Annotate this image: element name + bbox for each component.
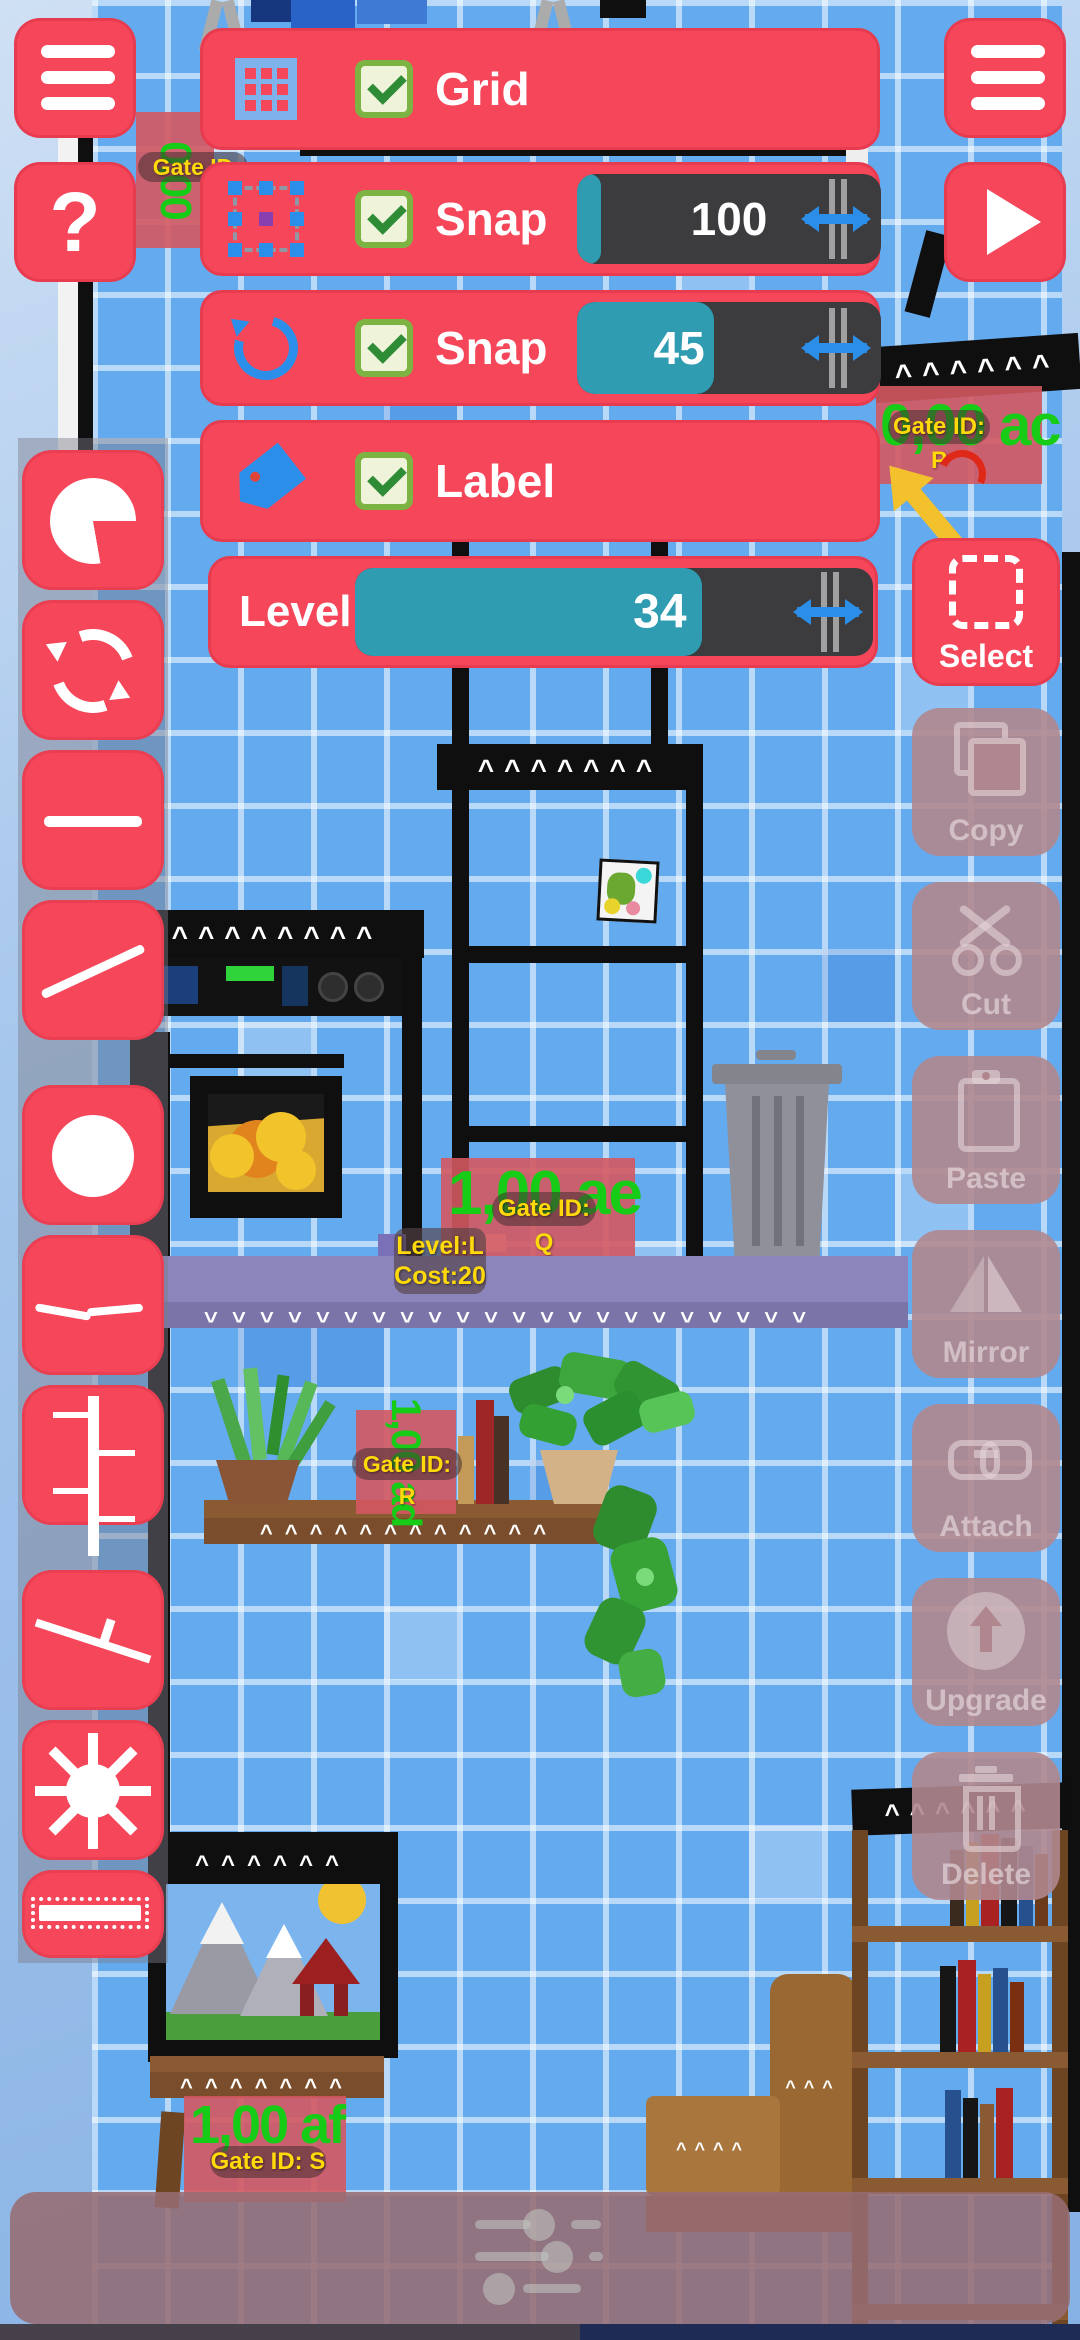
level-slider[interactable]: 34 bbox=[355, 568, 873, 656]
paste-tool-label: Paste bbox=[912, 1162, 1060, 1196]
label-label: Label bbox=[435, 454, 555, 508]
info-level: Level:L bbox=[394, 1231, 486, 1262]
ceiling-object[interactable] bbox=[357, 0, 427, 24]
grid-checkbox[interactable] bbox=[355, 60, 413, 118]
cycle-arrows-icon bbox=[25, 603, 161, 737]
level-editor-screen: ^^^^^^ 0,00 ac Gate ID: P ^^^^^^^ bbox=[0, 0, 1080, 2340]
snap-move-row: Snap 100 bbox=[200, 162, 880, 276]
snap-rotate-value: 45 bbox=[577, 321, 705, 375]
delete-tool-label: Delete bbox=[912, 1858, 1060, 1892]
snap-move-checkbox[interactable] bbox=[355, 190, 413, 248]
shallow-angle-icon bbox=[25, 1238, 161, 1372]
angle-tool-button[interactable] bbox=[22, 1235, 164, 1375]
bottom-edge-strip bbox=[0, 2324, 580, 2340]
sun-object bbox=[318, 1884, 366, 1924]
gate-r-id-label: Gate ID: R bbox=[352, 1448, 462, 1480]
stove-dial bbox=[354, 972, 384, 1002]
sliders-icon bbox=[475, 2212, 605, 2304]
snap-rotate-label: Snap bbox=[435, 321, 547, 375]
sun-tool-button[interactable] bbox=[22, 1720, 164, 1860]
wall-tile bbox=[822, 949, 895, 1022]
play-button[interactable] bbox=[944, 162, 1066, 282]
copy-tool-button[interactable]: Copy bbox=[912, 708, 1060, 856]
menu-right-button[interactable] bbox=[944, 18, 1066, 138]
selected-object-info: Level:L Cost:20 bbox=[394, 1228, 486, 1294]
upgrade-tool-label: Upgrade bbox=[912, 1684, 1060, 1718]
select-tool-button[interactable]: Select bbox=[912, 538, 1060, 686]
menu-left-button[interactable] bbox=[14, 18, 136, 138]
level-row: Level 34 bbox=[208, 556, 878, 668]
bottom-settings-drawer[interactable] bbox=[10, 2192, 1070, 2324]
mirror-triangles-icon bbox=[946, 1244, 1026, 1324]
grid-icon bbox=[227, 49, 307, 129]
mirror-tool-button[interactable]: Mirror bbox=[912, 1230, 1060, 1378]
chain-link-icon bbox=[946, 1418, 1026, 1498]
circle-tool-button[interactable] bbox=[22, 1085, 164, 1225]
diagonal-line-icon bbox=[25, 903, 161, 1037]
scissors-icon bbox=[946, 896, 1026, 976]
indicator-light bbox=[226, 966, 274, 981]
select-tool-label: Select bbox=[915, 638, 1057, 675]
copy-icon bbox=[946, 722, 1026, 802]
mirror-tool-label: Mirror bbox=[912, 1336, 1060, 1370]
snap-rotate-row: Snap 45 bbox=[200, 290, 880, 406]
ceiling-object[interactable] bbox=[251, 0, 291, 22]
info-cost: Cost:20 bbox=[394, 1262, 486, 1290]
ramp-line-icon bbox=[25, 1573, 161, 1707]
drag-handle-icon bbox=[797, 572, 859, 652]
circle-shape-icon bbox=[25, 1088, 161, 1222]
pie-shape-icon bbox=[25, 453, 161, 587]
delete-tool-button[interactable]: Delete bbox=[912, 1752, 1060, 1900]
stove-dial bbox=[318, 972, 348, 1002]
snap-rotate-slider[interactable]: 45 bbox=[577, 302, 881, 394]
attach-tool-button[interactable]: Attach bbox=[912, 1404, 1060, 1552]
dashed-selection-icon bbox=[946, 555, 1026, 635]
snap-move-label: Snap bbox=[435, 192, 547, 246]
attach-tool-label: Attach bbox=[912, 1510, 1060, 1544]
gate-q-id-label: Gate ID: Q bbox=[492, 1192, 596, 1226]
wall-tile bbox=[749, 1826, 822, 1899]
grid-label: Grid bbox=[435, 62, 530, 116]
oven-door bbox=[190, 1076, 342, 1210]
level-value: 34 bbox=[355, 585, 687, 640]
cut-tool-label: Cut bbox=[912, 988, 1060, 1022]
bottom-edge-strip bbox=[580, 2324, 1080, 2340]
paste-tool-button[interactable]: Paste bbox=[912, 1056, 1060, 1204]
conveyor-tool-button[interactable] bbox=[22, 1870, 164, 1958]
up-arrow-circle-icon bbox=[946, 1592, 1026, 1672]
gate-s-id-label: Gate ID: S bbox=[210, 2146, 326, 2178]
label-checkbox[interactable] bbox=[355, 452, 413, 510]
trash-icon bbox=[946, 1766, 1026, 1846]
play-icon bbox=[987, 189, 1041, 255]
pie-shape-tool-button[interactable] bbox=[22, 450, 164, 590]
drag-handle-icon bbox=[805, 308, 867, 388]
help-button[interactable]: ? bbox=[14, 162, 136, 282]
ramp-tool-button[interactable] bbox=[22, 1570, 164, 1710]
ruler-tool-button[interactable] bbox=[22, 1385, 164, 1525]
rotate-icon bbox=[227, 308, 307, 388]
picture-frame bbox=[596, 858, 659, 923]
selection-handles-icon bbox=[227, 179, 307, 259]
diorama-screen bbox=[166, 1884, 380, 2040]
snap-move-slider[interactable]: 100 bbox=[577, 174, 881, 264]
ruler-line-icon bbox=[25, 1388, 161, 1522]
diagonal-line-tool-button[interactable] bbox=[22, 900, 164, 1040]
label-row: Label bbox=[200, 420, 880, 542]
wall-tile bbox=[384, 1607, 457, 1680]
clipboard-icon bbox=[946, 1070, 1026, 1150]
tag-icon bbox=[227, 441, 307, 521]
conveyor-icon bbox=[25, 1873, 161, 1955]
cycle-tool-button[interactable] bbox=[22, 600, 164, 740]
drag-handle-icon bbox=[805, 179, 867, 259]
question-mark-icon: ? bbox=[49, 175, 100, 269]
horizontal-line-icon bbox=[25, 753, 161, 887]
grid-row: Grid bbox=[200, 28, 880, 150]
ceiling-object[interactable] bbox=[600, 0, 646, 18]
upgrade-tool-button[interactable]: Upgrade bbox=[912, 1578, 1060, 1726]
sun-icon bbox=[25, 1723, 161, 1857]
level-label: Level bbox=[239, 587, 352, 637]
line-tool-button[interactable] bbox=[22, 750, 164, 890]
snap-rotate-checkbox[interactable] bbox=[355, 319, 413, 377]
copy-tool-label: Copy bbox=[912, 814, 1060, 848]
cut-tool-button[interactable]: Cut bbox=[912, 882, 1060, 1030]
